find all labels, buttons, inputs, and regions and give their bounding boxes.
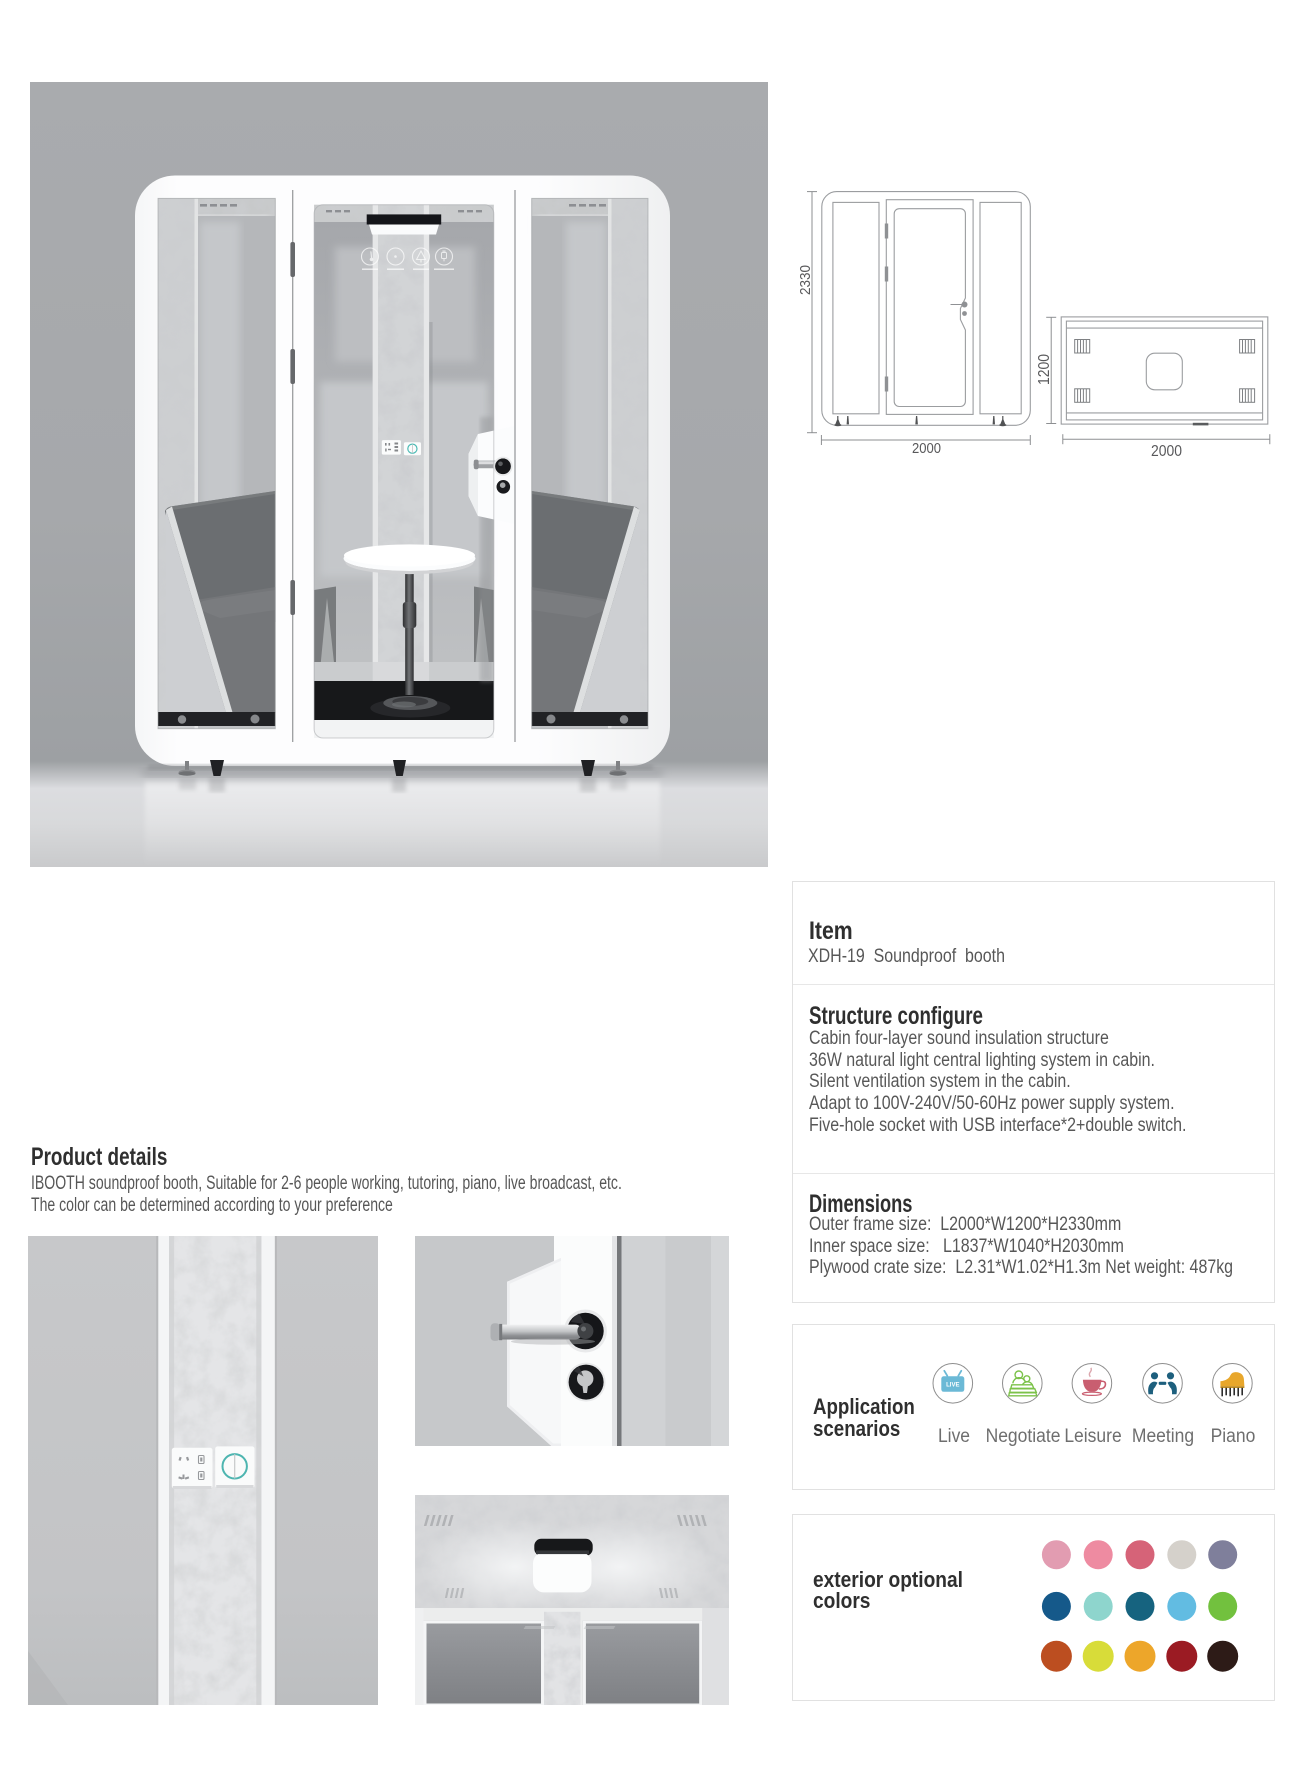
- svg-text:1200: 1200: [1036, 354, 1053, 385]
- svg-text:2000: 2000: [1151, 443, 1182, 460]
- svg-text:2330: 2330: [798, 265, 814, 295]
- svg-text:LIVE: LIVE: [946, 1383, 959, 1389]
- svg-text:2000: 2000: [912, 441, 941, 457]
